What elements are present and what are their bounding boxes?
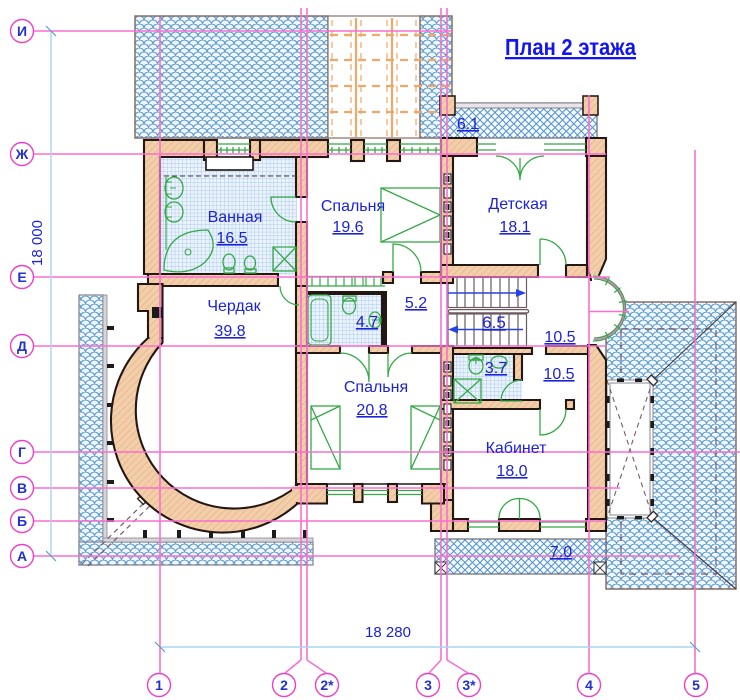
svg-text:Б: Б xyxy=(17,513,27,529)
svg-text:18.1: 18.1 xyxy=(499,219,530,236)
svg-text:16.5: 16.5 xyxy=(216,230,247,247)
svg-text:Ванная: Ванная xyxy=(208,209,263,226)
svg-text:39.8: 39.8 xyxy=(214,323,245,340)
svg-text:3*: 3* xyxy=(462,677,476,693)
svg-text:20.8: 20.8 xyxy=(356,402,387,419)
svg-text:7.0: 7.0 xyxy=(550,544,572,561)
svg-text:Спальня: Спальня xyxy=(344,379,408,396)
svg-text:План 2 этажа: План 2 этажа xyxy=(505,34,636,60)
svg-text:Е: Е xyxy=(17,269,26,285)
svg-text:Спальня: Спальня xyxy=(321,198,385,215)
svg-text:5: 5 xyxy=(692,677,700,693)
svg-text:4.7: 4.7 xyxy=(356,314,378,331)
svg-text:6.1: 6.1 xyxy=(457,116,479,133)
svg-text:И: И xyxy=(17,23,27,39)
svg-text:18 280: 18 280 xyxy=(365,624,411,641)
svg-text:3: 3 xyxy=(424,677,432,693)
svg-text:18 000: 18 000 xyxy=(29,220,46,266)
svg-text:4: 4 xyxy=(585,677,593,693)
svg-text:3.7: 3.7 xyxy=(485,360,507,377)
svg-text:18.0: 18.0 xyxy=(496,463,527,480)
svg-text:6.5: 6.5 xyxy=(482,313,506,332)
svg-text:Г: Г xyxy=(18,444,26,460)
svg-text:1: 1 xyxy=(155,677,163,693)
svg-text:2*: 2* xyxy=(320,677,334,693)
svg-text:Кабинет: Кабинет xyxy=(486,440,548,457)
svg-text:Чердак: Чердак xyxy=(207,298,261,315)
svg-text:Детская: Детская xyxy=(488,196,547,213)
svg-text:19.6: 19.6 xyxy=(332,219,363,236)
svg-text:Д: Д xyxy=(17,338,27,354)
svg-text:5.2: 5.2 xyxy=(405,295,427,312)
svg-text:2: 2 xyxy=(280,677,288,693)
svg-text:А: А xyxy=(17,548,27,564)
svg-text:10.5: 10.5 xyxy=(543,366,574,383)
svg-text:10.5: 10.5 xyxy=(544,329,575,346)
svg-text:Ж: Ж xyxy=(15,146,29,162)
svg-text:В: В xyxy=(17,480,27,496)
